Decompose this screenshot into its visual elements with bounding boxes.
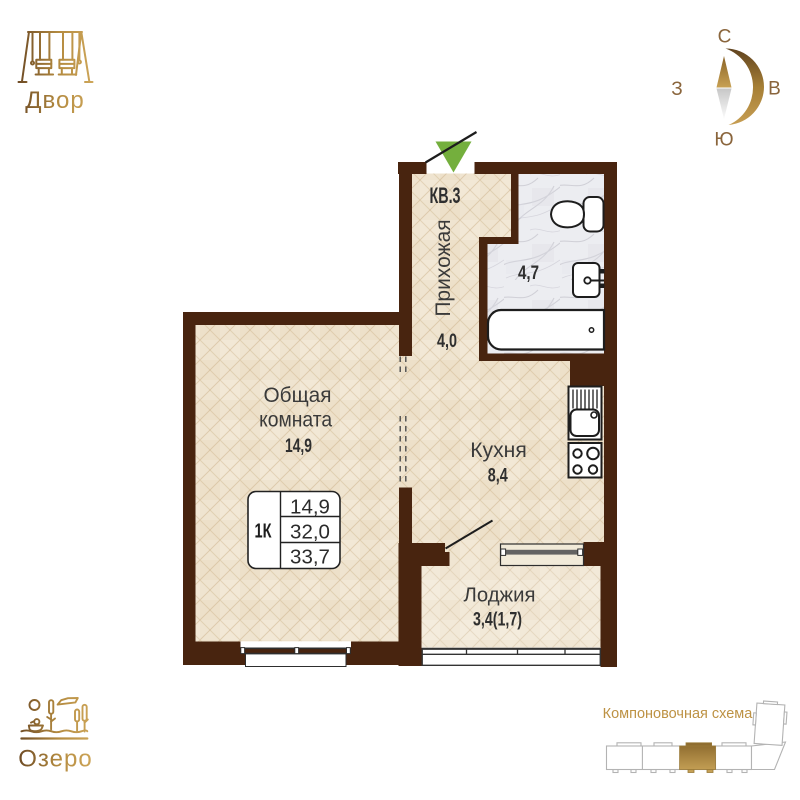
svg-text:Кухня: Кухня [470, 439, 527, 462]
svg-text:Двор: Двор [25, 87, 84, 114]
svg-text:Компоновочная схема: Компоновочная схема [603, 706, 754, 722]
svg-text:1К: 1К [255, 521, 273, 543]
svg-text:Общая: Общая [264, 383, 332, 407]
svg-text:33,7: 33,7 [290, 546, 330, 569]
svg-text:14,9: 14,9 [290, 496, 330, 519]
svg-text:С: С [718, 27, 732, 48]
svg-text:КВ.3: КВ.3 [430, 183, 461, 208]
svg-text:4,7: 4,7 [518, 263, 539, 284]
svg-text:комната: комната [259, 408, 332, 432]
svg-text:Прихожая: Прихожая [432, 219, 455, 316]
svg-text:З: З [671, 79, 682, 100]
svg-text:32,0: 32,0 [290, 521, 330, 544]
svg-text:4,0: 4,0 [437, 331, 457, 352]
svg-text:Ю: Ю [714, 130, 733, 151]
svg-text:Озеро: Озеро [18, 746, 92, 773]
svg-text:В: В [768, 79, 781, 100]
svg-text:14,9: 14,9 [285, 436, 312, 457]
svg-text:Лоджия: Лоджия [464, 585, 536, 607]
svg-text:8,4: 8,4 [488, 466, 508, 487]
svg-text:3,4(1,7): 3,4(1,7) [473, 609, 522, 631]
